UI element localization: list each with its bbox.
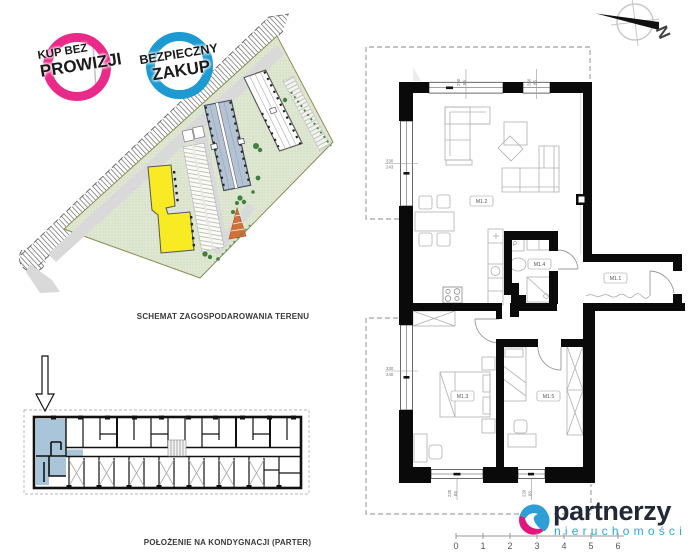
svg-text:M1.1: M1.1	[610, 276, 622, 282]
svg-text:220: 220	[447, 489, 452, 497]
svg-text:M1.4: M1.4	[534, 262, 546, 268]
svg-text:330: 330	[386, 159, 394, 164]
svg-text:1: 1	[480, 541, 485, 551]
svg-text:85: 85	[462, 80, 467, 85]
svg-text:M1.3: M1.3	[457, 394, 469, 400]
svg-text:4: 4	[561, 541, 566, 551]
svg-text:3: 3	[534, 541, 539, 551]
svg-text:330: 330	[386, 366, 394, 371]
svg-text:6: 6	[615, 541, 620, 551]
svg-text:250: 250	[527, 78, 532, 86]
svg-text:250: 250	[456, 78, 461, 86]
svg-text:M1.2: M1.2	[476, 199, 488, 205]
svg-text:85: 85	[533, 80, 538, 85]
svg-text:0: 0	[453, 541, 458, 551]
svg-text:85: 85	[453, 491, 458, 496]
svg-text:5: 5	[588, 541, 593, 551]
svg-text:243: 243	[386, 165, 394, 170]
svg-text:2: 2	[507, 541, 512, 551]
svg-text:240: 240	[386, 372, 394, 377]
svg-text:P: P	[513, 242, 517, 248]
svg-text:M1.5: M1.5	[543, 394, 555, 400]
